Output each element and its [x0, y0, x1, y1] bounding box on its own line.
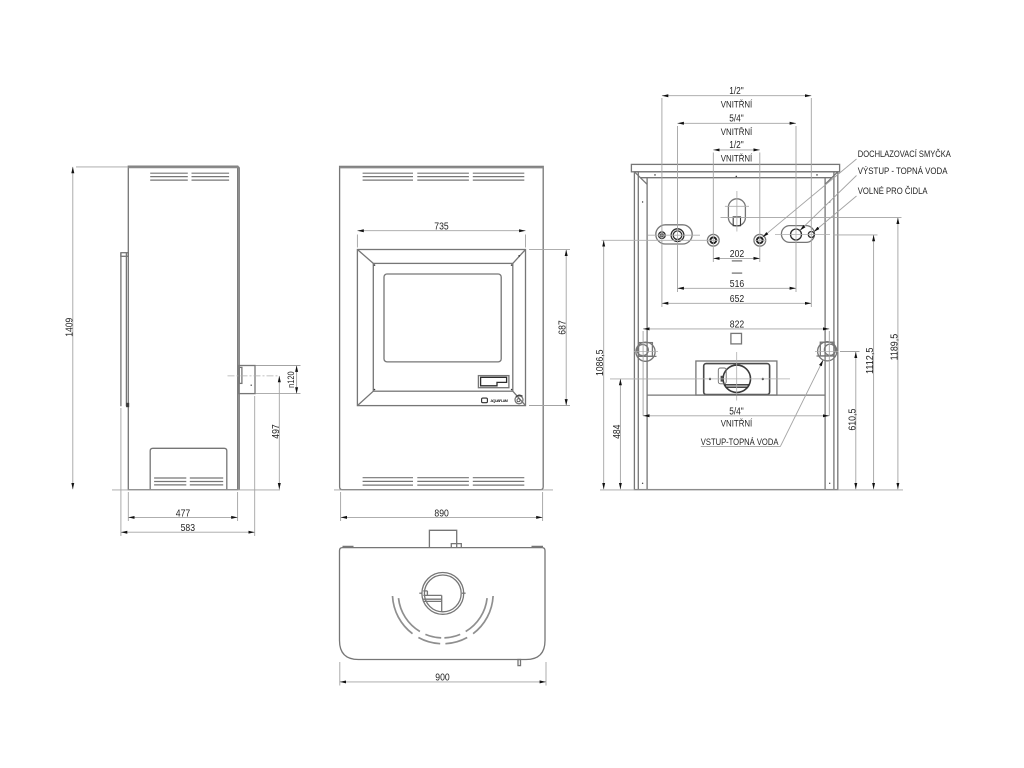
svg-text:652: 652 [730, 294, 745, 305]
svg-text:VÝSTUP - TOPNÁ VODA: VÝSTUP - TOPNÁ VODA [858, 166, 948, 177]
svg-text:n120: n120 [286, 371, 296, 388]
svg-text:900: 900 [435, 673, 450, 684]
svg-text:5/4": 5/4" [729, 113, 744, 124]
svg-text:VNITŘNÍ: VNITŘNÍ [721, 418, 753, 428]
svg-text:484: 484 [612, 424, 623, 439]
svg-text:VNITŘNÍ: VNITŘNÍ [721, 154, 753, 164]
svg-text:202: 202 [730, 249, 745, 260]
svg-text:1086,5: 1086,5 [595, 349, 606, 376]
svg-text:AQUAFLAM: AQUAFLAM [490, 399, 508, 403]
svg-text:5/4": 5/4" [729, 407, 744, 418]
svg-text:1112,5: 1112,5 [865, 347, 876, 374]
svg-text:497: 497 [271, 424, 282, 439]
svg-text:477: 477 [176, 508, 191, 519]
svg-text:VNITŘNÍ: VNITŘNÍ [721, 99, 753, 109]
svg-text:VNITŘNÍ: VNITŘNÍ [721, 127, 753, 137]
svg-text:1189,5: 1189,5 [889, 333, 900, 360]
svg-text:1/2": 1/2" [729, 86, 744, 97]
svg-text:890: 890 [434, 508, 449, 519]
svg-text:735: 735 [434, 222, 449, 233]
svg-text:610,5: 610,5 [847, 408, 858, 430]
svg-text:DOCHLAZOVACÍ SMYČKA: DOCHLAZOVACÍ SMYČKA [858, 149, 951, 160]
svg-text:687: 687 [558, 320, 569, 335]
svg-text:1/2": 1/2" [729, 140, 744, 151]
svg-text:822: 822 [730, 320, 745, 331]
svg-text:516: 516 [730, 279, 745, 290]
svg-text:VOLNÉ PRO ČIDLA: VOLNÉ PRO ČIDLA [858, 186, 928, 197]
svg-text:1409: 1409 [64, 317, 75, 336]
svg-text:583: 583 [181, 523, 196, 534]
